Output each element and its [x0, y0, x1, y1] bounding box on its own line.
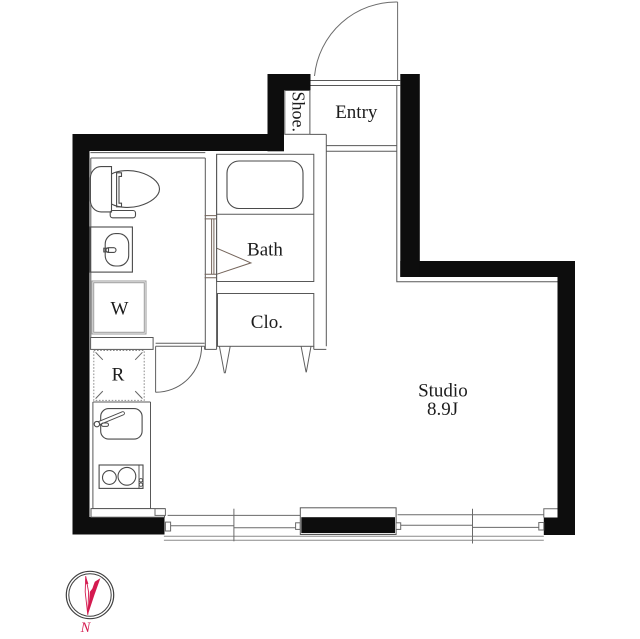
svg-text:W: W — [111, 298, 129, 319]
svg-text:R: R — [112, 364, 125, 385]
svg-text:Clo.: Clo. — [251, 312, 283, 333]
svg-text:Entry: Entry — [335, 102, 378, 123]
svg-text:Shoe.: Shoe. — [289, 92, 309, 133]
svg-text:N: N — [80, 620, 92, 636]
svg-text:Bath: Bath — [247, 240, 283, 261]
svg-text:8.9J: 8.9J — [427, 399, 458, 420]
